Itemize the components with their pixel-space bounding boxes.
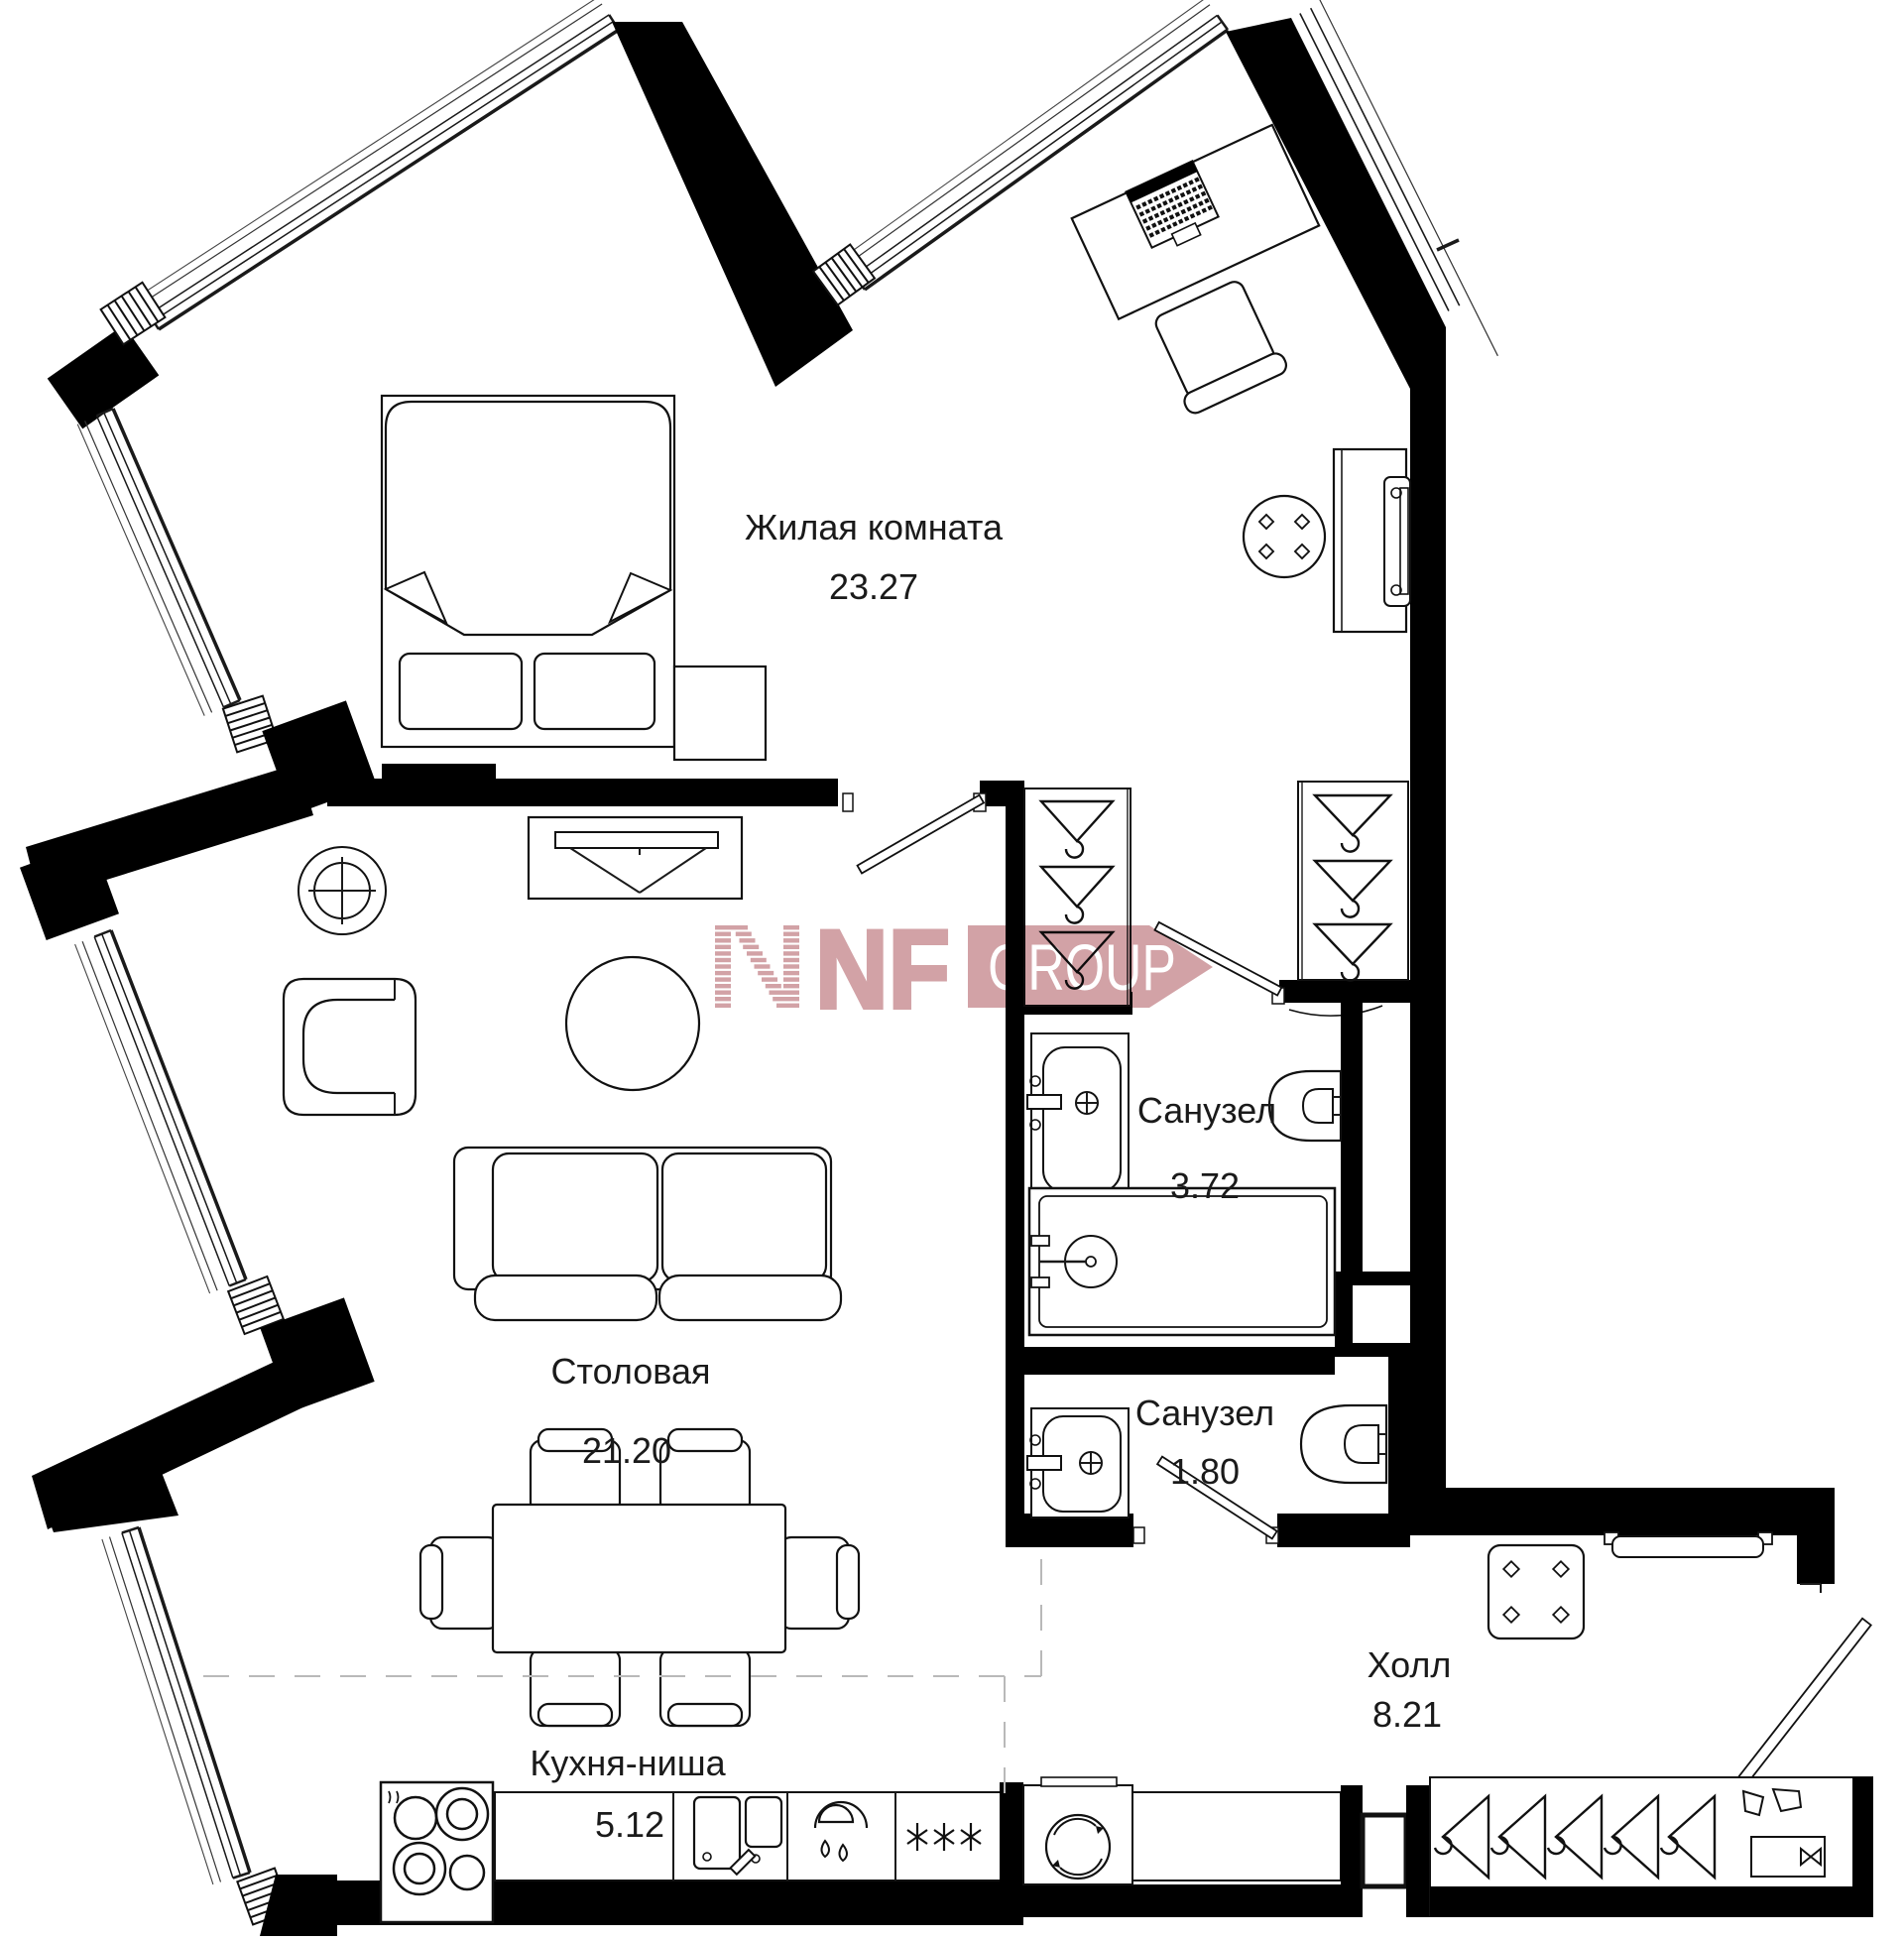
- svg-text:23.27: 23.27: [829, 566, 918, 607]
- svg-text:Холл: Холл: [1368, 1644, 1452, 1685]
- svg-text:Кухня-ниша: Кухня-ниша: [530, 1743, 726, 1783]
- svg-text:Санузел: Санузел: [1135, 1393, 1274, 1433]
- svg-text:GROUP: GROUP: [988, 930, 1176, 1004]
- svg-text:Столовая: Столовая: [551, 1351, 711, 1392]
- svg-text:Жилая комната: Жилая комната: [745, 507, 1004, 547]
- svg-text:5.12: 5.12: [595, 1804, 664, 1845]
- svg-text:21.20: 21.20: [582, 1430, 671, 1471]
- svg-text:NF: NF: [815, 908, 950, 1031]
- svg-text:3.72: 3.72: [1170, 1165, 1240, 1206]
- svg-text:8.21: 8.21: [1372, 1694, 1442, 1735]
- svg-text:Санузел: Санузел: [1137, 1090, 1276, 1131]
- svg-text:1.80: 1.80: [1170, 1451, 1240, 1492]
